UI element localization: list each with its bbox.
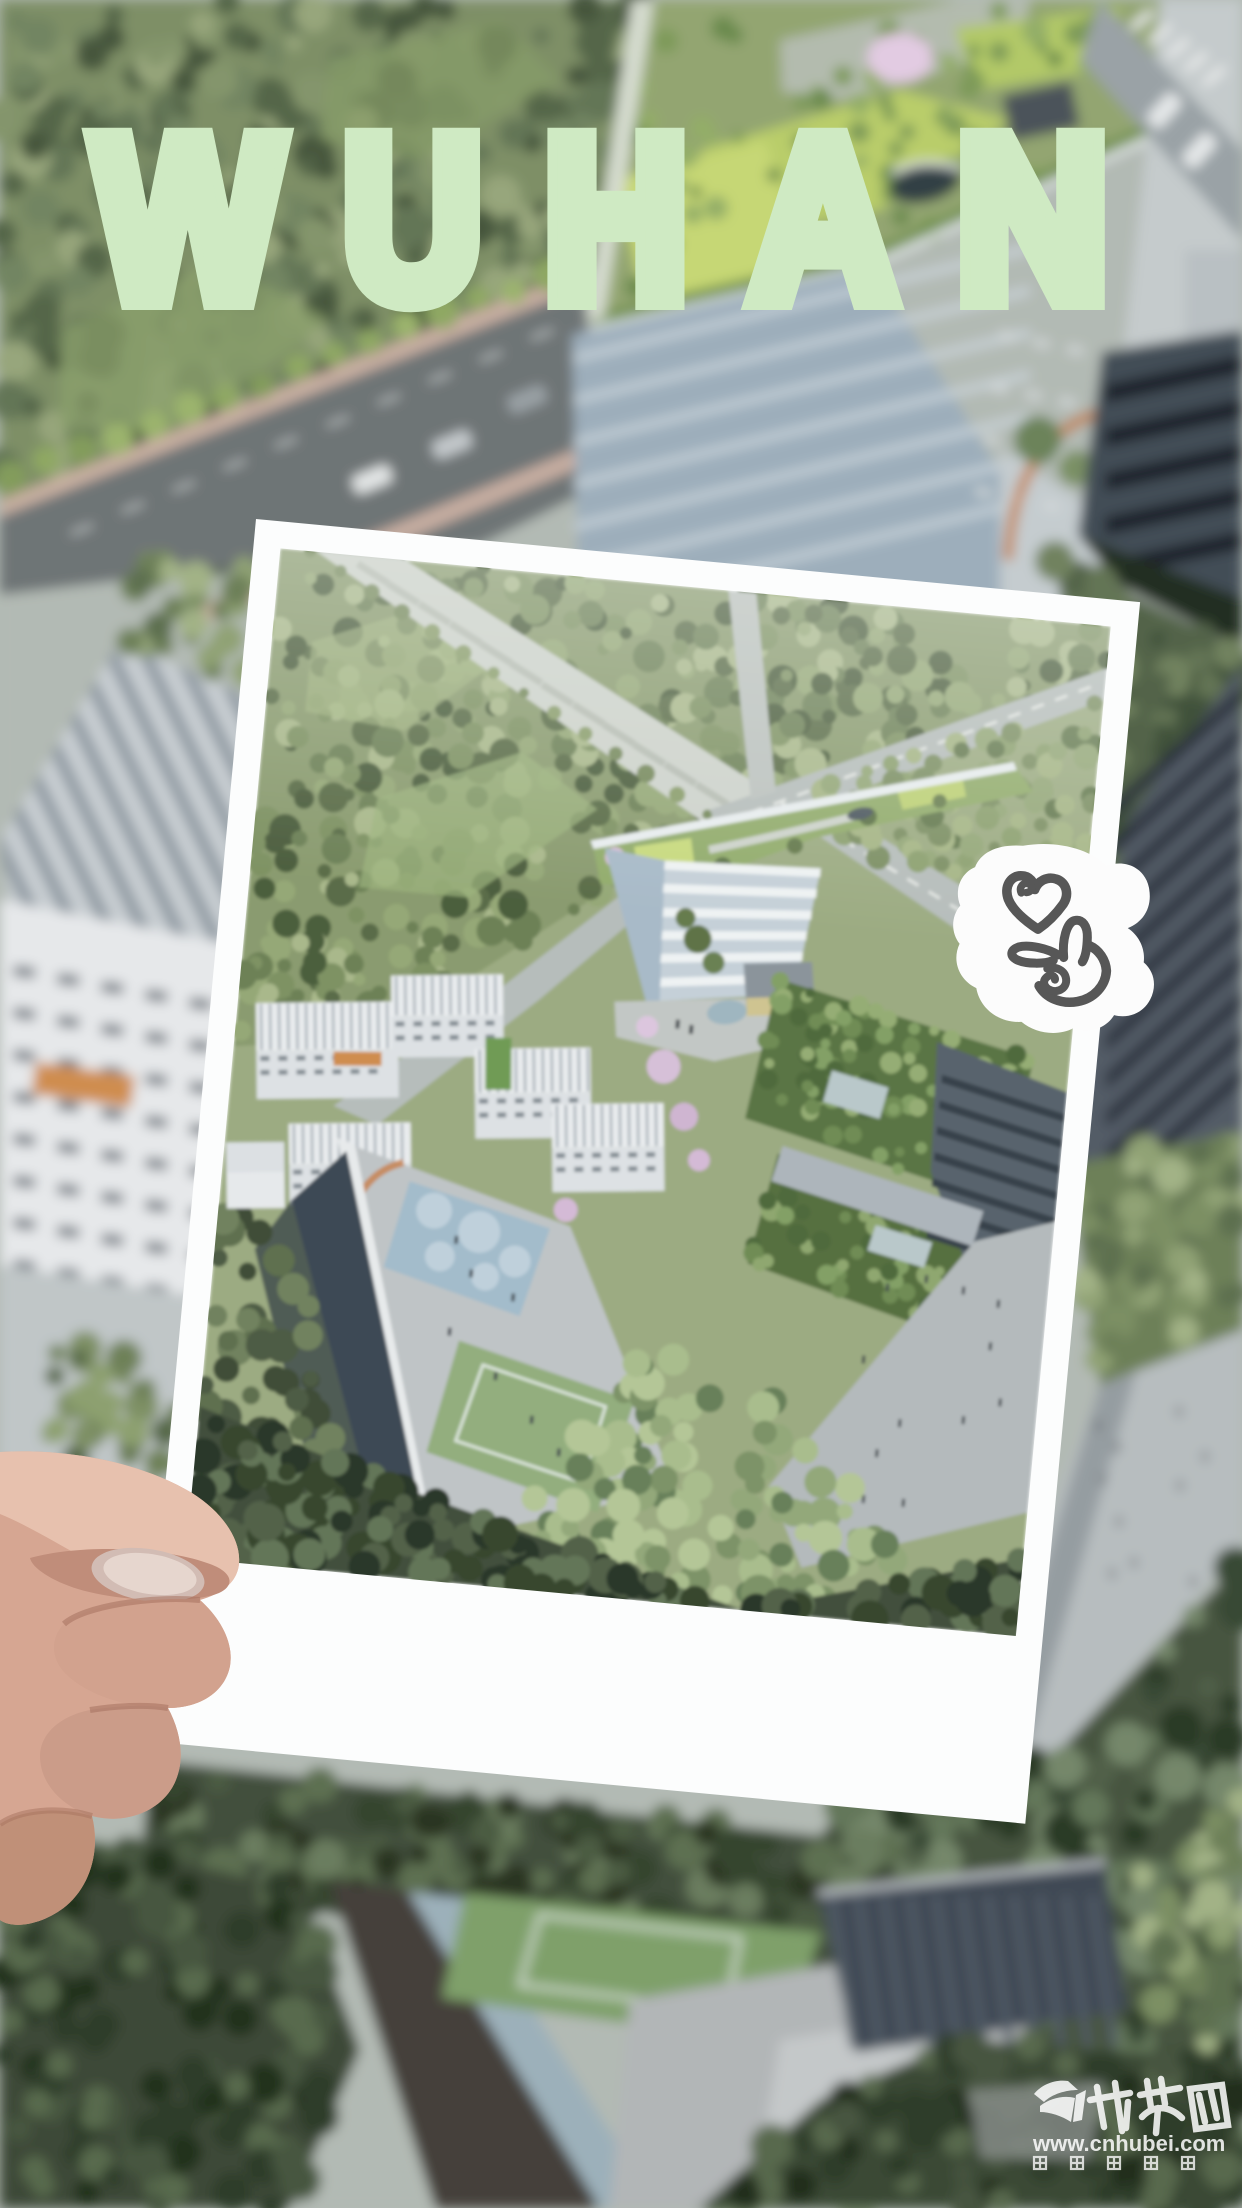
svg-text:H: H (545, 91, 688, 347)
svg-text:U: U (343, 89, 482, 346)
svg-text:W: W (95, 91, 282, 347)
svg-text:N: N (957, 90, 1108, 347)
svg-text:www.cnhubei.com: www.cnhubei.com (1032, 2131, 1225, 2156)
svg-text:A: A (751, 90, 896, 347)
